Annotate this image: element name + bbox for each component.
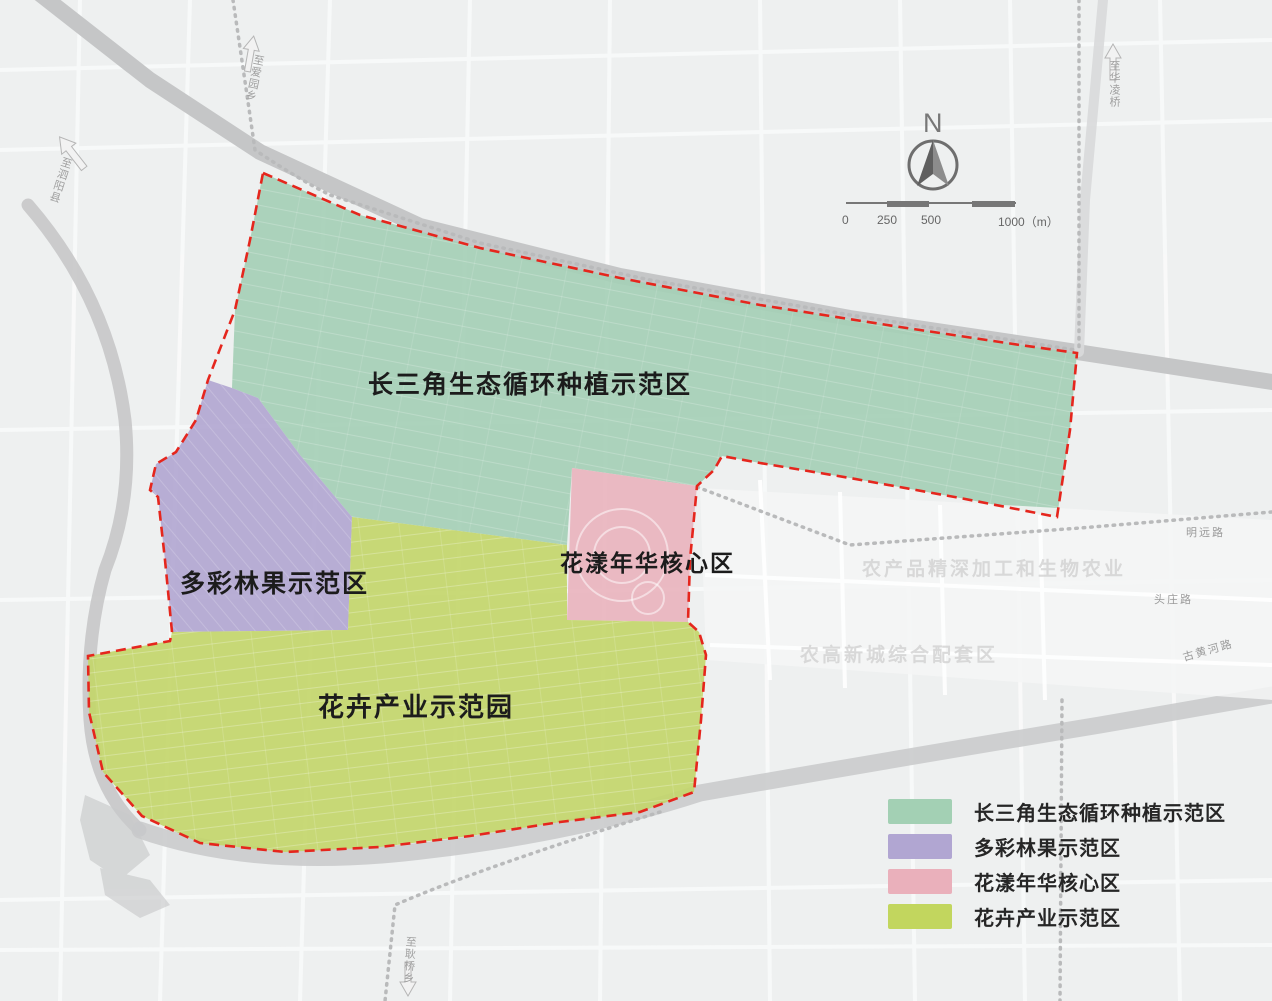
legend-swatch-green [888, 799, 952, 824]
edge-label-bottom: 至耿桥乡 [399, 936, 418, 985]
zone-label-yellow: 花卉产业示范园 [318, 687, 514, 724]
north-label: N [923, 108, 943, 139]
zone-label-green: 长三角生态循环种植示范区 [368, 365, 692, 401]
legend-swatch-yellow [888, 904, 952, 929]
edge-label-top-right: 至华凌桥 [1106, 60, 1122, 108]
legend-label: 花漾年华核心区 [974, 867, 1121, 896]
legend-swatch-purple [888, 834, 952, 859]
map-legend: 长三角生态循环种植示范区 多彩林果示范区 花漾年华核心区 花卉产业示范区 [888, 799, 1226, 929]
legend-item: 长三角生态循环种植示范区 [888, 799, 1226, 824]
zone-label-pink: 花漾年华核心区 [560, 544, 735, 578]
legend-item: 花卉产业示范区 [888, 904, 1226, 929]
scale-tick-500: 500 [921, 213, 941, 227]
zone-label-purple: 多彩林果示范区 [180, 564, 369, 600]
legend-item: 花漾年华核心区 [888, 869, 1226, 894]
legend-item: 多彩林果示范区 [888, 834, 1226, 859]
scale-tick-250: 250 [877, 213, 897, 227]
legend-label: 多彩林果示范区 [974, 832, 1121, 861]
watermark-agro-area: 农产品精深加工和生物农业 [862, 554, 1126, 581]
road-label-touzhuang: 头庄路 [1154, 591, 1193, 607]
watermark-city-area: 农高新城综合配套区 [800, 640, 998, 667]
legend-label: 长三角生态循环种植示范区 [974, 797, 1226, 826]
scale-tick-1000: 1000（m） [998, 213, 1059, 230]
planning-map: 长三角生态循环种植示范区 多彩林果示范区 花漾年华核心区 花卉产业示范园 农产品… [0, 0, 1272, 1001]
legend-label: 花卉产业示范区 [974, 902, 1121, 931]
road-label-mingyuan: 明远路 [1186, 524, 1225, 540]
legend-swatch-pink [888, 869, 952, 894]
scale-tick-0: 0 [842, 213, 849, 227]
